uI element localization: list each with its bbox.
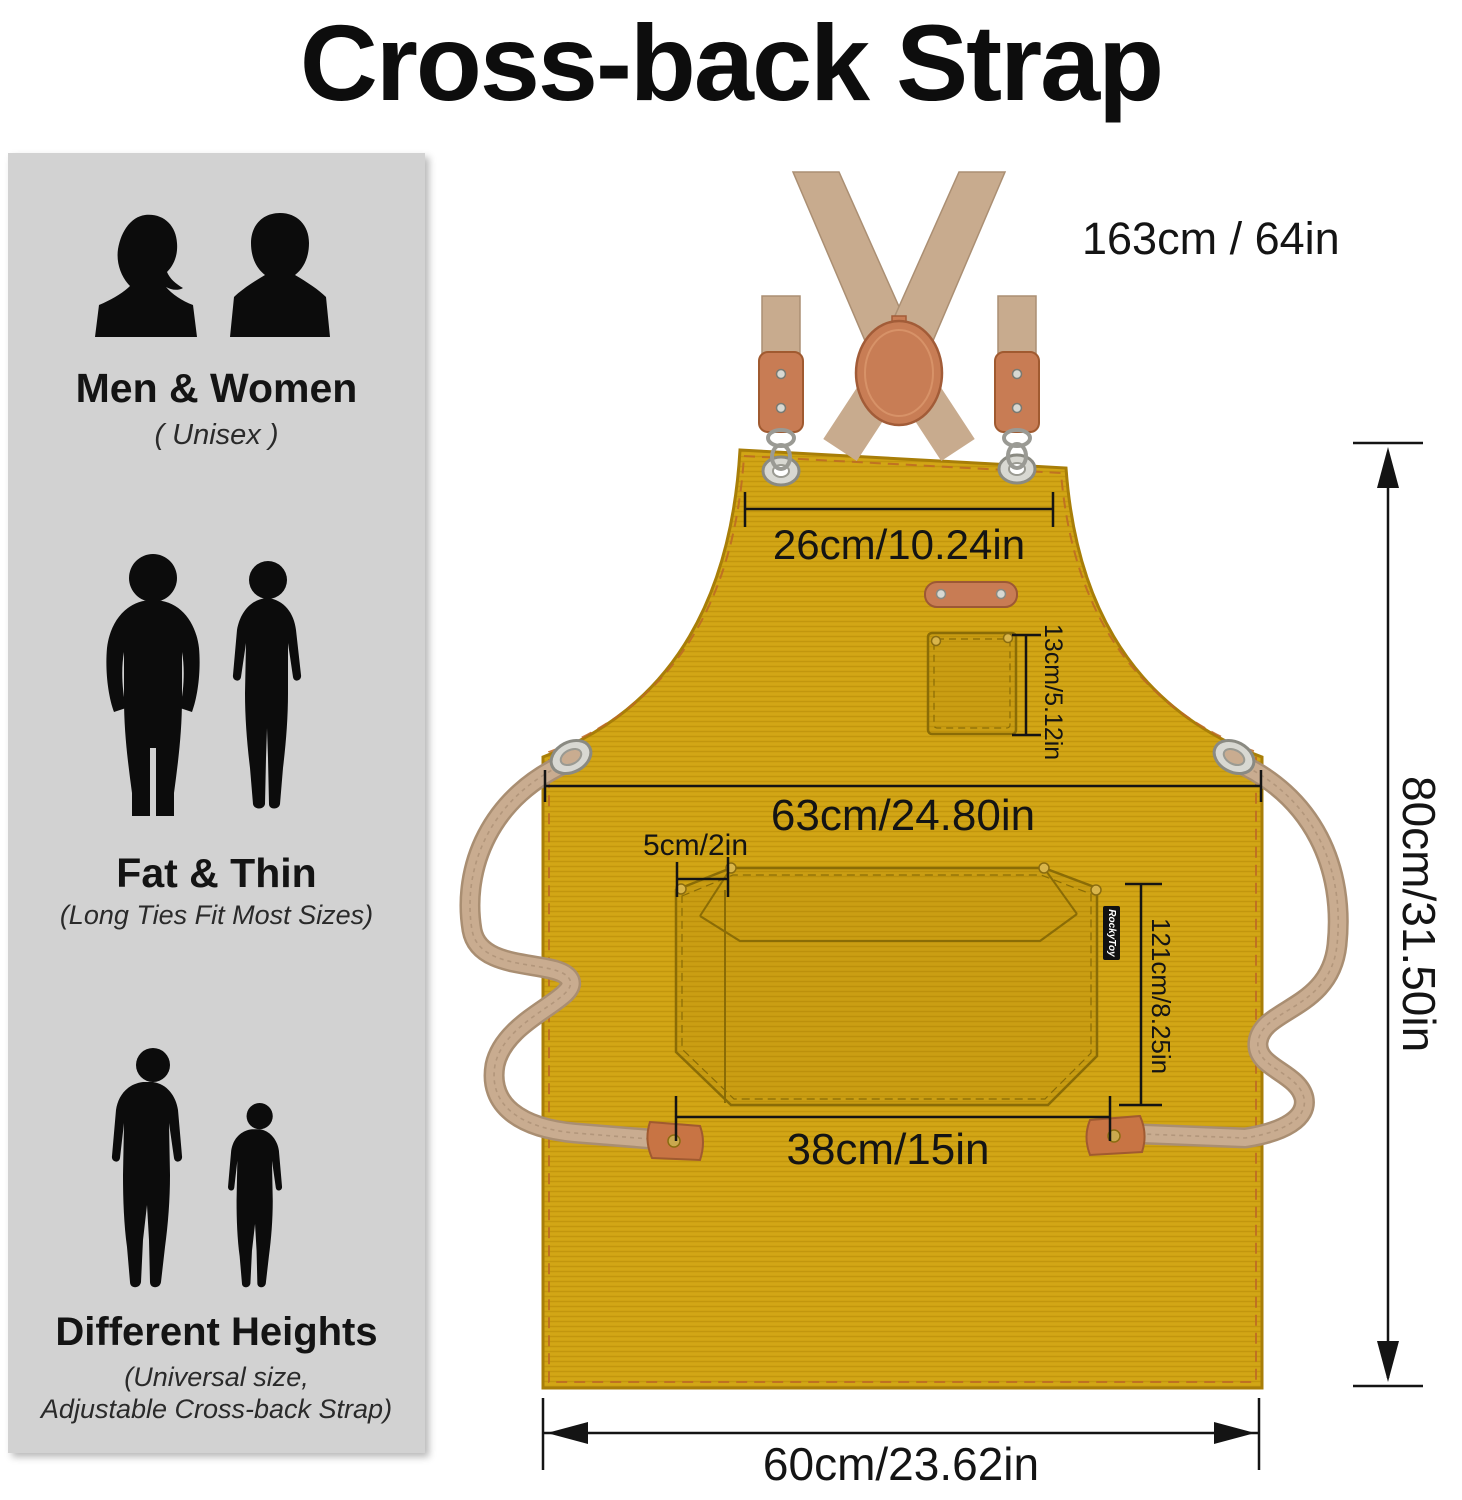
- rivet-icon: [1013, 404, 1022, 413]
- rivet-icon: [932, 637, 941, 646]
- label-apron-bottom-width: 60cm/23.62in: [543, 1441, 1259, 1487]
- rivet-icon: [777, 404, 786, 413]
- rivet-icon: [997, 590, 1006, 599]
- brand-tag: RockyToy: [1103, 906, 1120, 960]
- section-subtext-adjustable-strap: Adjustable Cross-back Strap): [8, 1394, 425, 1425]
- chest-pocket: [928, 633, 1016, 734]
- rivet-icon: [1013, 370, 1022, 379]
- label-front-pocket-width: 38cm/15in: [666, 1128, 1110, 1172]
- rivet-icon: [1039, 863, 1049, 873]
- fat-thin-figures-icon: [88, 548, 338, 826]
- rivet-icon: [777, 370, 786, 379]
- chest-leather-patch: [925, 582, 1017, 607]
- section-subtext-unisex: ( Unisex ): [8, 419, 425, 452]
- man-bust-icon: [230, 213, 330, 337]
- thin-figure-icon: [233, 561, 301, 809]
- strap-end-right: [995, 296, 1039, 468]
- rivet-icon: [1004, 634, 1013, 643]
- rivet-icon: [937, 590, 946, 599]
- strap-end-left: [759, 296, 803, 469]
- section-heading-different-heights: Different Heights: [8, 1310, 425, 1355]
- section-subtext-universal-size: (Universal size,: [8, 1362, 425, 1393]
- label-apron-length: 80cm/31.50in: [1396, 776, 1442, 1052]
- label-strap-length: 163cm / 64in: [1082, 216, 1340, 261]
- men-women-busts-icon: [83, 205, 345, 343]
- woman-bust-icon: [95, 215, 197, 337]
- section-subtext-long-ties: (Long Ties Fit Most Sizes): [8, 900, 425, 931]
- cross-back-straps: [759, 172, 1039, 469]
- page-title: Cross-back Strap: [0, 0, 1462, 125]
- section-heading-fat-thin: Fat & Thin: [8, 850, 425, 897]
- label-tool-slot-width: 5cm/2in: [613, 831, 778, 861]
- fat-figure-icon: [106, 554, 199, 816]
- label-chest-pocket-height: 13cm/5.12in: [1040, 624, 1065, 760]
- short-man-icon: [228, 1103, 282, 1287]
- svg-text:RockyToy: RockyToy: [1106, 909, 1117, 957]
- label-front-pocket-height: 121cm/8.25in: [1148, 918, 1174, 1074]
- label-neck-width: 26cm/10.24in: [745, 524, 1053, 566]
- section-heading-men-women: Men & Women: [8, 365, 425, 412]
- rivet-icon: [1091, 885, 1101, 895]
- front-pocket: RockyToy: [676, 863, 1120, 1105]
- feature-sidebar: Men & Women ( Unisex ) Fat & Thin (Long …: [8, 153, 425, 1453]
- different-heights-figures-icon: [93, 1033, 333, 1291]
- tall-man-icon: [112, 1048, 182, 1287]
